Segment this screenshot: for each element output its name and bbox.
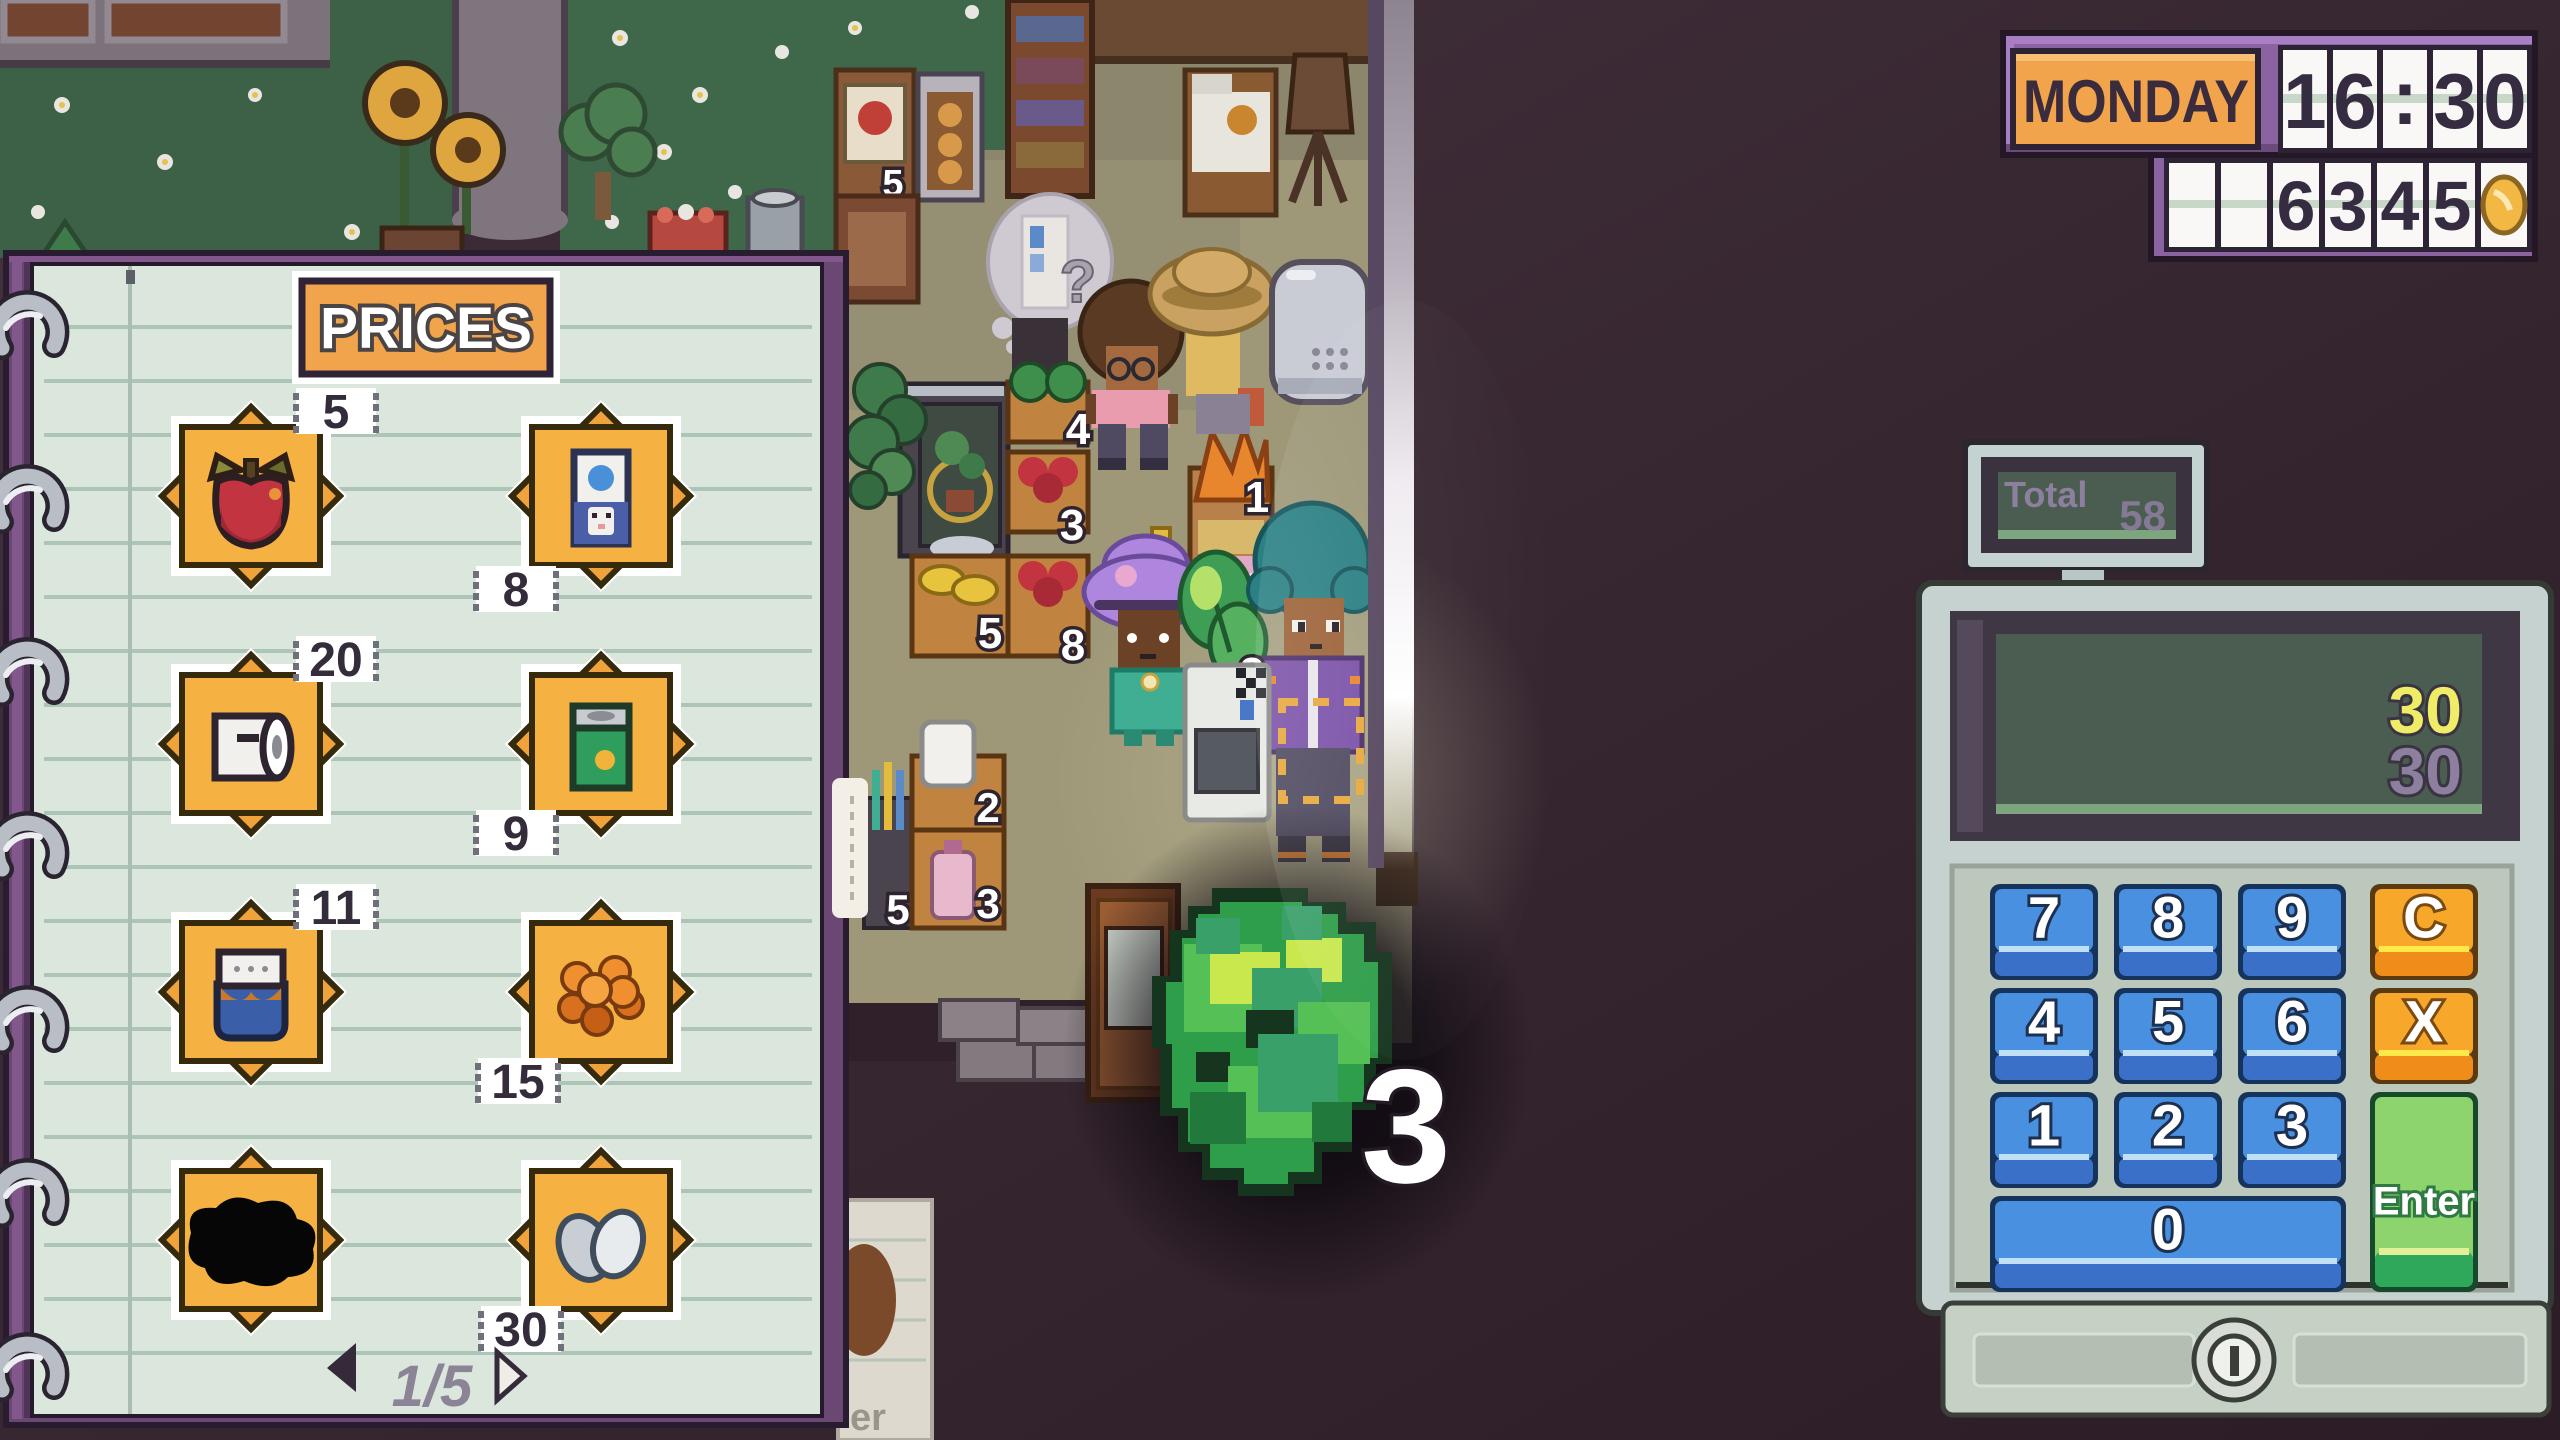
- svg-text:6: 6: [2333, 57, 2376, 145]
- svg-text:2: 2: [976, 784, 999, 831]
- svg-text:7: 7: [2028, 885, 2060, 950]
- svg-text:3: 3: [2329, 167, 2368, 245]
- svg-text:4: 4: [2381, 167, 2420, 245]
- svg-text:30: 30: [494, 1304, 547, 1357]
- svg-text:20: 20: [309, 634, 362, 687]
- svg-text:4: 4: [2028, 989, 2060, 1054]
- svg-text:11: 11: [311, 882, 362, 935]
- svg-text:9: 9: [503, 808, 530, 861]
- svg-text:9: 9: [2276, 885, 2308, 950]
- svg-text:1/5: 1/5: [392, 1354, 473, 1419]
- svg-text:8: 8: [1061, 621, 1085, 670]
- svg-text:5: 5: [2152, 989, 2184, 1054]
- svg-text:6: 6: [2277, 167, 2316, 245]
- svg-text:Total: Total: [2004, 474, 2087, 515]
- svg-text:8: 8: [503, 564, 530, 617]
- svg-text:8: 8: [2152, 885, 2184, 950]
- svg-text:1: 1: [1245, 473, 1269, 522]
- svg-text::: :: [2392, 53, 2418, 141]
- svg-text:1: 1: [2028, 1093, 2060, 1158]
- svg-text:3: 3: [2433, 57, 2476, 145]
- svg-text:1: 1: [2283, 57, 2326, 145]
- svg-text:6: 6: [2276, 989, 2308, 1054]
- svg-text:3: 3: [1060, 501, 1084, 550]
- svg-text:3: 3: [1361, 1036, 1451, 1217]
- svg-text:5: 5: [978, 609, 1002, 658]
- svg-text:PRICES: PRICES: [320, 296, 532, 361]
- svg-text:5: 5: [323, 386, 350, 439]
- svg-text:3: 3: [976, 880, 999, 927]
- svg-text:0: 0: [2483, 57, 2526, 145]
- svg-text:er: er: [850, 1397, 886, 1439]
- svg-text:0: 0: [2152, 1197, 2184, 1262]
- svg-text:MONDAY: MONDAY: [2023, 68, 2249, 135]
- svg-text:5: 5: [886, 886, 909, 933]
- svg-text:5: 5: [2433, 167, 2472, 245]
- svg-text:58: 58: [2119, 492, 2166, 539]
- svg-text:2: 2: [2152, 1093, 2184, 1158]
- svg-text:X: X: [2405, 989, 2444, 1054]
- svg-text:30: 30: [2389, 734, 2462, 808]
- svg-text:3: 3: [2276, 1093, 2308, 1158]
- svg-text:C: C: [2403, 885, 2445, 950]
- svg-text:15: 15: [491, 1056, 544, 1109]
- svg-text:Enter: Enter: [2373, 1180, 2475, 1224]
